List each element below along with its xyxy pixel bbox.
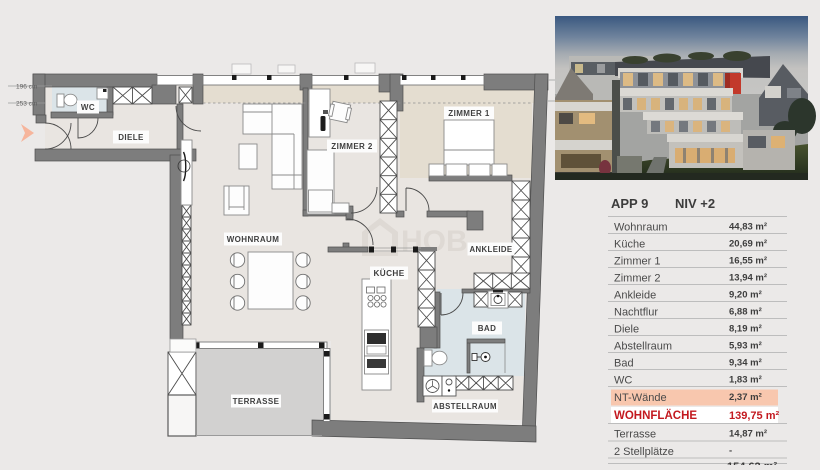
svg-text:ZIMMER 1: ZIMMER 1 [448,109,490,118]
svg-text:9,20 m²: 9,20 m² [729,290,762,301]
svg-text:TERRASSE: TERRASSE [233,397,280,406]
svg-text:Nachtflur: Nachtflur [614,307,658,319]
svg-text:139,75 m²: 139,75 m² [729,410,779,422]
svg-text:APP 9: APP 9 [611,196,648,211]
svg-text:WC: WC [81,103,95,112]
svg-text:WOHNRAUM: WOHNRAUM [227,235,280,244]
svg-text:2,37 m²: 2,37 m² [729,392,762,403]
svg-text:ZIMMER 2: ZIMMER 2 [331,142,373,151]
svg-text:2 Stellplätze: 2 Stellplätze [614,446,674,458]
svg-text:13,94 m²: 13,94 m² [729,273,767,284]
svg-text:DIELE: DIELE [118,133,144,142]
svg-text:Zimmer 2: Zimmer 2 [614,273,660,285]
svg-text:ABSTELLRAUM: ABSTELLRAUM [433,402,497,411]
svg-text:Wohnraum: Wohnraum [614,222,668,234]
svg-text:BAD: BAD [478,324,497,333]
svg-text:WC: WC [614,375,632,387]
svg-text:Zimmer 1: Zimmer 1 [614,256,660,268]
svg-text:KÜCHE: KÜCHE [373,268,404,278]
svg-text:Küche: Küche [614,239,645,251]
svg-text:5,93 m²: 5,93 m² [729,341,762,352]
svg-text:44,83 m²: 44,83 m² [729,222,767,233]
svg-text:ANKLEIDE: ANKLEIDE [469,245,512,254]
svg-text:253 cm: 253 cm [16,101,37,108]
svg-text:16,55 m²: 16,55 m² [729,256,767,267]
svg-text:6,88 m²: 6,88 m² [729,307,762,318]
svg-text:9,34 m²: 9,34 m² [729,358,762,369]
svg-text:NT-Wände: NT-Wände [614,392,667,404]
svg-text:8,19 m²: 8,19 m² [729,324,762,335]
svg-text:20,69 m²: 20,69 m² [729,239,767,250]
svg-text:Bad: Bad [614,358,634,370]
svg-text:NIV +2: NIV +2 [675,196,715,211]
svg-text:196 cm: 196 cm [16,84,37,91]
svg-text:154,62 m²: 154,62 m² [727,461,777,465]
svg-text:14,87 m²: 14,87 m² [729,429,767,440]
svg-text:-: - [729,446,732,457]
svg-text:WOHNFLÄCHE: WOHNFLÄCHE [614,409,697,422]
svg-text:1,83 m²: 1,83 m² [729,375,762,386]
svg-text:Ankleide: Ankleide [614,290,656,302]
svg-text:Abstellraum: Abstellraum [614,341,672,353]
svg-text:Diele: Diele [614,324,639,336]
svg-text:Terrasse: Terrasse [614,429,656,441]
